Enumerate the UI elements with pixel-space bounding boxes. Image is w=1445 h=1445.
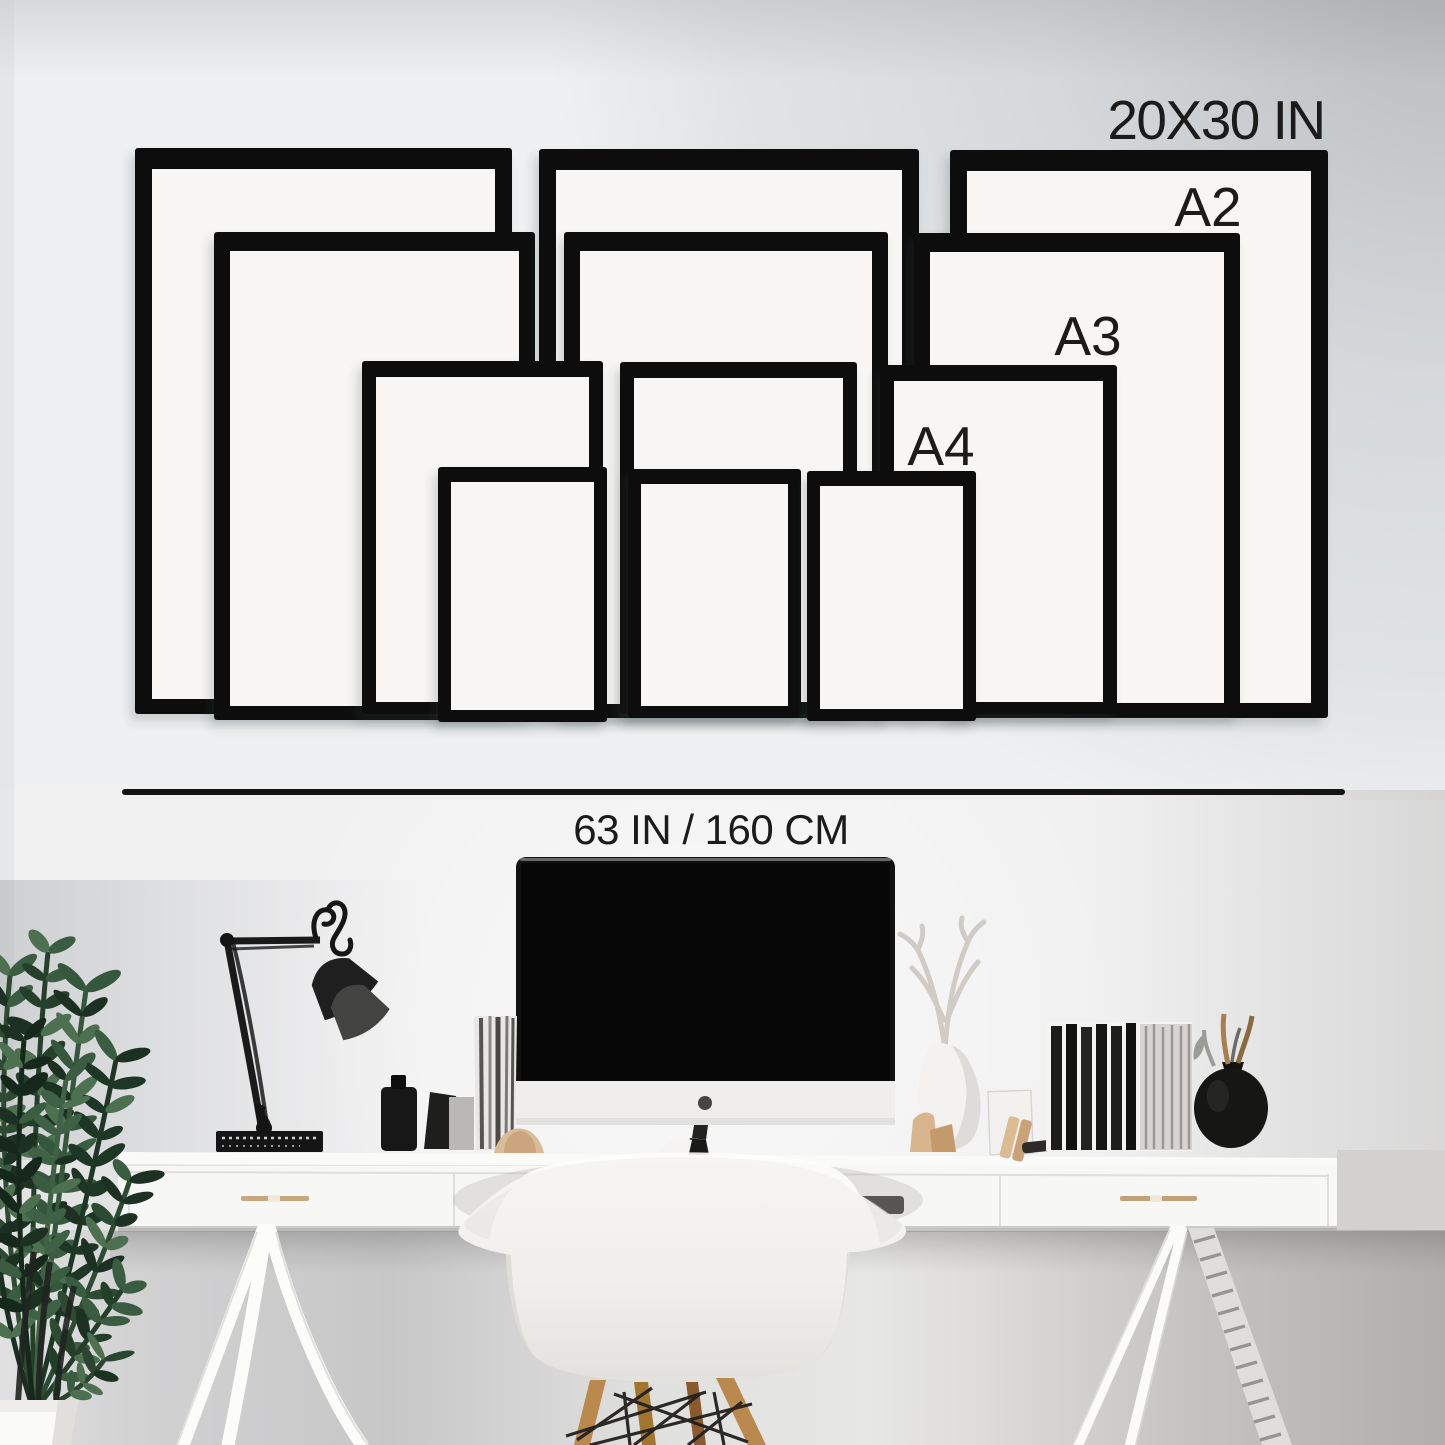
svg-text:A4: A4 (907, 415, 974, 477)
svg-text:A2: A2 (1174, 176, 1241, 238)
svg-text:A3: A3 (1054, 305, 1121, 367)
svg-text:20X30 IN: 20X30 IN (1107, 89, 1324, 151)
svg-text:63 IN / 160 CM: 63 IN / 160 CM (573, 806, 848, 853)
